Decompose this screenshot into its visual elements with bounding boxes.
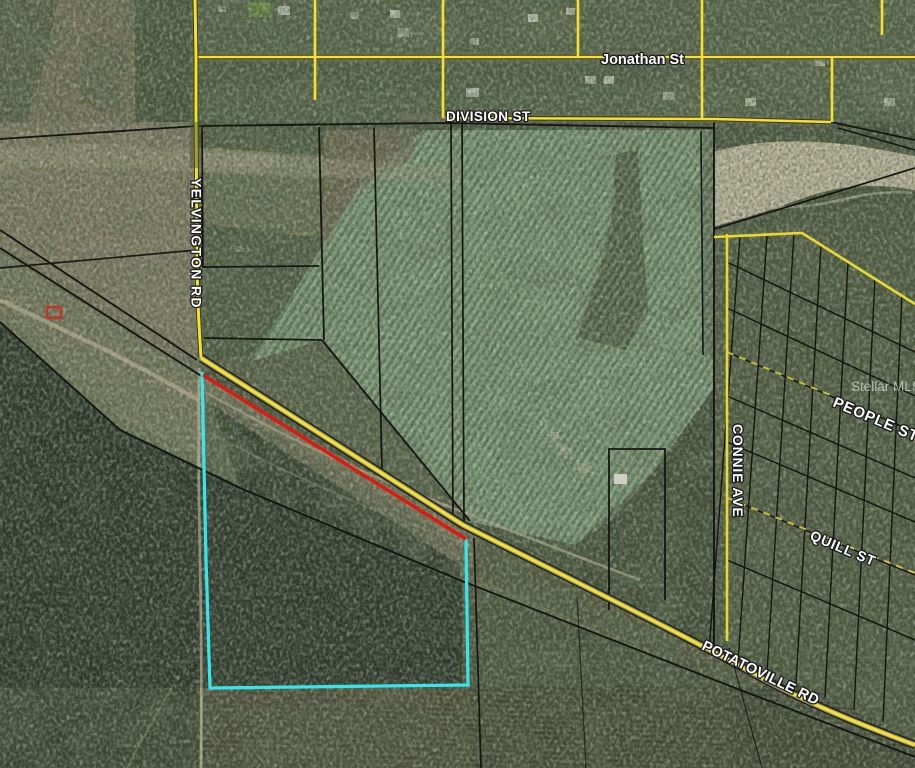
svg-text:DIVISION ST: DIVISION ST [446,109,531,124]
svg-text:Stellar MLS: Stellar MLS [851,379,915,394]
svg-text:YELVINGTON RD: YELVINGTON RD [189,178,205,309]
svg-text:Jonathan St: Jonathan St [601,52,684,68]
svg-text:CONNIE AVE: CONNIE AVE [730,424,746,518]
